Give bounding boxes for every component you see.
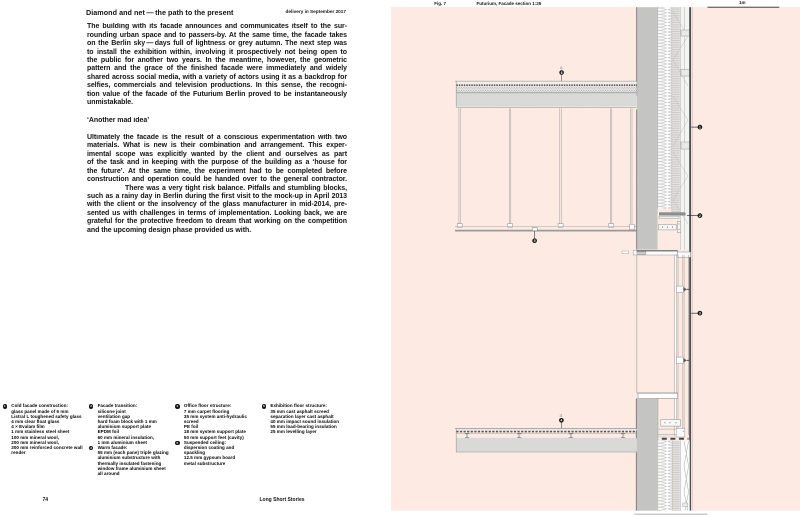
svg-text:1: 1 (699, 125, 701, 129)
svg-text:6: 6 (561, 71, 563, 75)
svg-text:5: 5 (534, 239, 536, 243)
svg-text:3: 3 (699, 312, 701, 316)
svg-text:6: 6 (560, 66, 563, 71)
svg-text:4: 4 (560, 413, 563, 418)
svg-text:4: 4 (561, 419, 563, 423)
svg-text:2: 2 (699, 214, 701, 218)
